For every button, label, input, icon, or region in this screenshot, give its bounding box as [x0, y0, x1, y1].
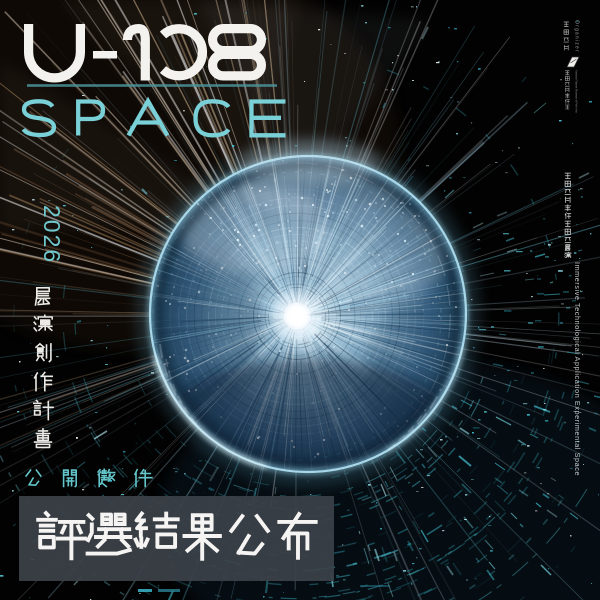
- svg-text:National Taiwan Museum of Fine: National Taiwan Museum of Fine Arts: [575, 70, 579, 113]
- svg-text:2026: 2026: [39, 205, 65, 264]
- svg-text:Organizer: Organizer: [574, 20, 580, 53]
- svg-text:Immersive Technological Appl: Immersive Technological Application Expe…: [573, 262, 582, 476]
